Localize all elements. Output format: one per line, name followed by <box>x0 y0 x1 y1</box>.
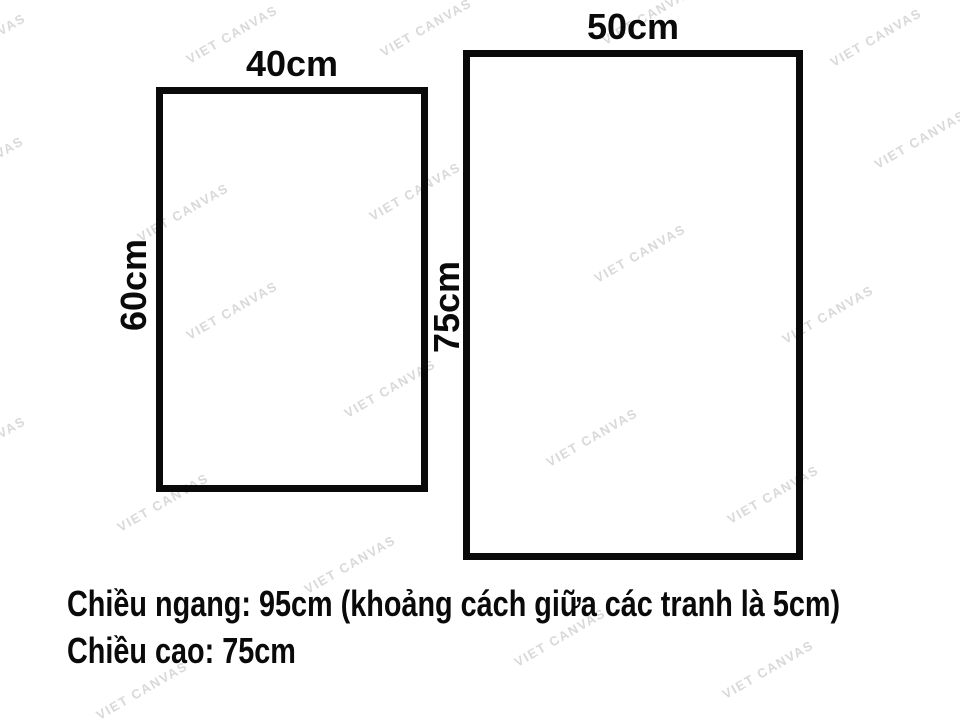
viet-canvas-watermark: VIET CANVAS <box>0 129 34 202</box>
frame-50x75-height-label: 75cm <box>427 237 467 377</box>
caption-vertical-line: Chiều cao: 75cm <box>67 627 840 674</box>
frame-40x60-rectangle <box>156 87 428 492</box>
viet-canvas-watermark: VIET CANVAS <box>820 1 931 74</box>
frame-50x75-rectangle <box>463 50 803 560</box>
frame-50x75-width-label: 50cm <box>533 7 733 47</box>
viet-canvas-watermark: VIET CANVAS <box>0 6 36 79</box>
frame-40x60-height-label: 60cm <box>114 215 154 355</box>
caption-horizontal-line: Chiều ngang: 95cm (khoảng cách giữa các … <box>67 580 840 627</box>
dimensions-caption: Chiều ngang: 95cm (khoảng cách giữa các … <box>67 580 840 674</box>
frame-40x60-width-label: 40cm <box>192 44 392 84</box>
viet-canvas-watermark: VIET CANVAS <box>0 409 36 482</box>
viet-canvas-watermark: VIET CANVAS <box>864 103 960 176</box>
